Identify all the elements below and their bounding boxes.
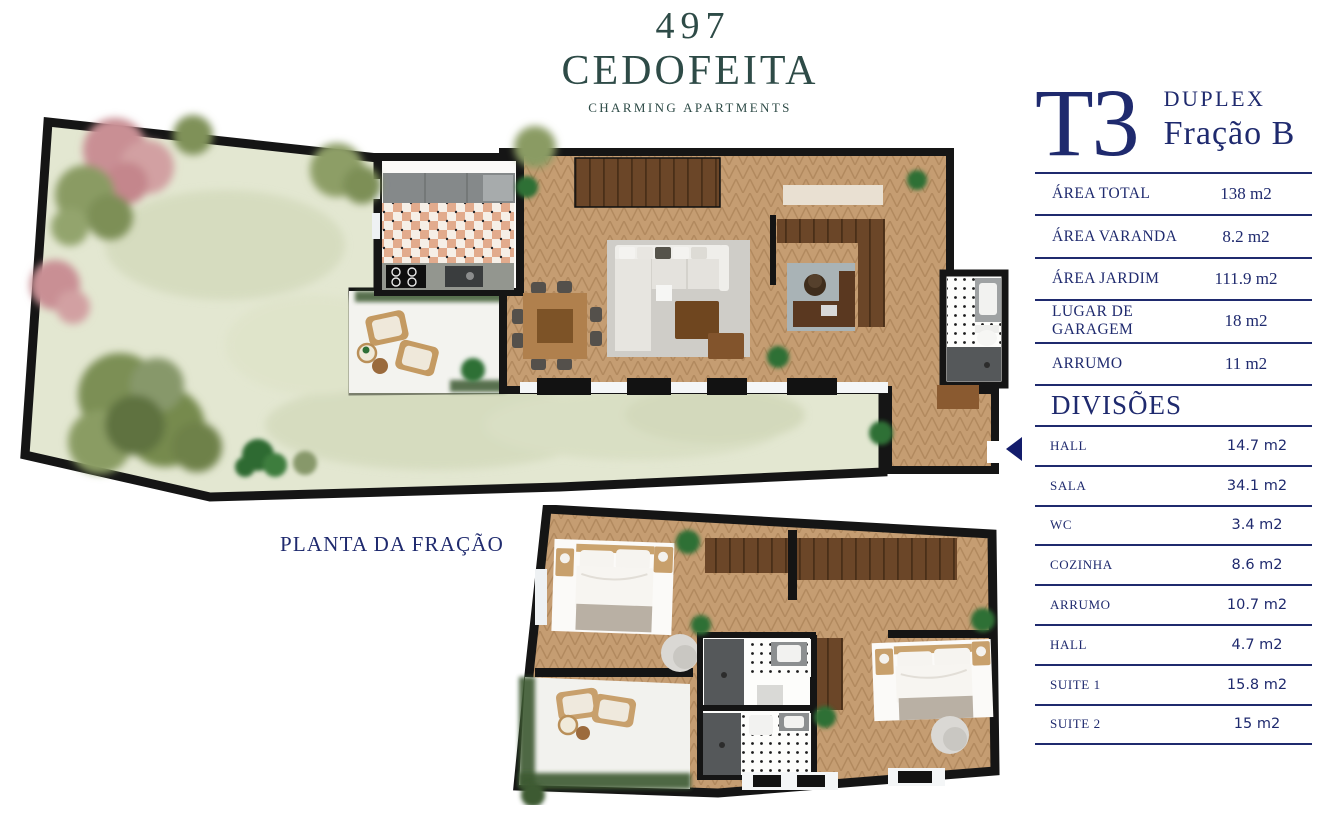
terrace-table: [559, 716, 577, 734]
bathroom-sink: [777, 645, 801, 662]
areas-table: ÁREA TOTAL 138 m2 ÁREA VARANDA 8.2 m2 ÁR…: [1035, 172, 1312, 386]
runner-rug: [783, 185, 883, 205]
table-row: ARRUMO 10.7 m2: [1035, 586, 1312, 626]
suite-1: [551, 539, 674, 635]
toilet: [977, 330, 997, 346]
area-label: ÁREA TOTAL: [1035, 185, 1180, 203]
table-row: SALA 34.1 m2: [1035, 467, 1312, 507]
cooktop: [386, 265, 426, 288]
table-row: COZINHA 8.6 m2: [1035, 546, 1312, 586]
sofa-area: [607, 240, 750, 359]
table-row: ÁREA JARDIM 111.9 m2: [1035, 259, 1312, 301]
division-value: 15 m2: [1202, 716, 1312, 732]
table-row: ÁREA VARANDA 8.2 m2: [1035, 216, 1312, 258]
division-label: WC: [1035, 517, 1202, 533]
side-table: [656, 285, 672, 301]
division-label: SALA: [1035, 478, 1202, 494]
table-row: ÁREA TOTAL 138 m2: [1035, 174, 1312, 216]
suite-2: [872, 639, 994, 721]
divisions-table: HALL 14.7 m2 SALA 34.1 m2 WC 3.4 m2 COZI…: [1035, 425, 1312, 745]
floor-plan-lower: [505, 505, 1025, 805]
bathroom-sink: [749, 715, 773, 735]
wardrobe: [705, 538, 788, 573]
division-label: COZINHA: [1035, 557, 1202, 573]
plan-label: PLANTA DA FRAÇÃO: [280, 532, 504, 557]
division-value: 15.8 m2: [1202, 677, 1312, 693]
terrace: [519, 677, 691, 789]
logo-name: CEDOFEITA: [562, 49, 819, 93]
area-value: 18 m2: [1180, 311, 1312, 331]
unit-fraction: Fração B: [1164, 115, 1296, 153]
hall-mat: [937, 385, 979, 409]
table-row: SUITE 2 15 m2: [1035, 706, 1312, 746]
division-label: HALL: [1035, 637, 1202, 653]
table-row: HALL 4.7 m2: [1035, 626, 1312, 666]
table-row: WC 3.4 m2: [1035, 507, 1312, 547]
unit-style: DUPLEX: [1164, 86, 1296, 112]
area-label: LUGAR DE GARAGEM: [1035, 303, 1180, 339]
division-value: 3.4 m2: [1202, 517, 1312, 533]
division-value: 14.7 m2: [1202, 438, 1312, 454]
table-row: SUITE 1 15.8 m2: [1035, 666, 1312, 706]
kitchen: [372, 157, 520, 292]
bathrooms: [700, 635, 813, 777]
terrace-table: [576, 726, 590, 740]
area-label: ÁREA JARDIM: [1035, 270, 1180, 288]
division-value: 10.7 m2: [1202, 597, 1312, 613]
wardrobe: [817, 638, 843, 710]
divisions-heading: DIVISÕES: [1035, 386, 1312, 425]
brochure-page: 497 CEDOFEITA CHARMING APARTMENTS T3 DUP…: [0, 0, 1338, 813]
floor-plan-upper: [15, 95, 1025, 520]
entrance-arrow-icon: [1006, 437, 1022, 461]
chaise: [615, 259, 651, 351]
table-row: HALL 14.7 m2: [1035, 427, 1312, 467]
patio-side-table: [372, 358, 388, 374]
patio: [349, 291, 507, 393]
area-value: 11 m2: [1180, 354, 1312, 374]
division-label: SUITE 1: [1035, 677, 1202, 693]
area-value: 111.9 m2: [1180, 269, 1312, 289]
wood-deck: [575, 158, 720, 207]
table-row: ARRUMO 11 m2: [1035, 344, 1312, 386]
logo-number: 497: [562, 6, 819, 48]
area-value: 138 m2: [1180, 184, 1312, 204]
division-label: HALL: [1035, 438, 1202, 454]
coffee-table: [708, 333, 744, 359]
area-label: ARRUMO: [1035, 355, 1180, 373]
division-value: 8.6 m2: [1202, 557, 1312, 573]
wardrobe: [858, 243, 885, 327]
bed: [575, 566, 653, 611]
wc: [943, 273, 1005, 385]
unit-header: T3 DUPLEX Fração B: [1035, 84, 1312, 172]
division-value: 34.1 m2: [1202, 478, 1312, 494]
office: [773, 215, 885, 331]
division-value: 4.7 m2: [1202, 637, 1312, 653]
wardrobe: [797, 538, 957, 580]
shower: [947, 347, 1001, 381]
wardrobe: [777, 219, 885, 243]
table-row: LUGAR DE GARAGEM 18 m2: [1035, 301, 1312, 343]
area-label: ÁREA VARANDA: [1035, 228, 1180, 246]
unit-type: T3: [1035, 84, 1138, 163]
division-label: ARRUMO: [1035, 597, 1202, 613]
area-value: 8.2 m2: [1180, 227, 1312, 247]
kitchen-sink: [445, 266, 483, 287]
unit-spec-panel: T3 DUPLEX Fração B ÁREA TOTAL 138 m2 ÁRE…: [1035, 84, 1312, 745]
kitchen-tile-floor: [382, 203, 514, 263]
division-label: SUITE 2: [1035, 716, 1202, 732]
